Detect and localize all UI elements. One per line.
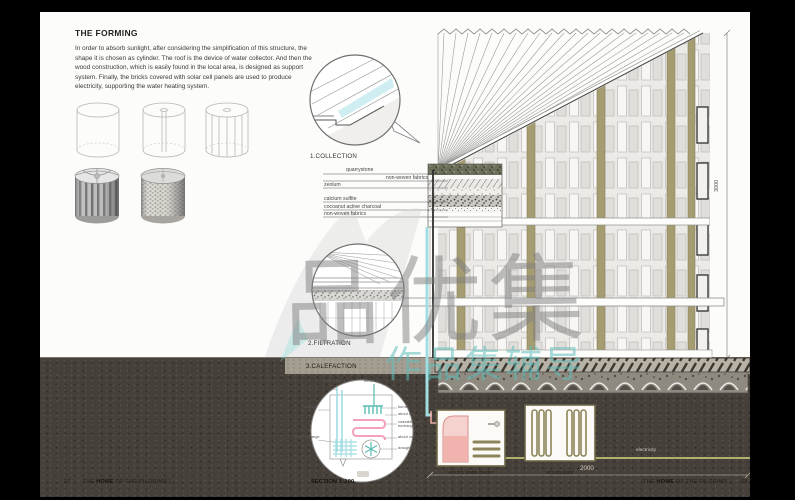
cylinder-plain (77, 103, 119, 157)
label-draught-fan: draught fan (398, 446, 418, 450)
footer-scale: SECTION 1:100 (311, 479, 354, 485)
intro-paragraph: In order to absorb sunlight, after consi… (75, 44, 313, 92)
water-heater-label: electric water heater (434, 470, 508, 476)
footer-left: 07THE HOME OF THE PILGRIMS | (64, 479, 171, 485)
page-number-left: 07 (64, 479, 71, 485)
roof-layer-stack (428, 164, 502, 227)
cylinder-ribs (206, 103, 248, 157)
label-exchanger: coaxable heat exchanger (398, 420, 428, 429)
collection-detail-circle (310, 55, 420, 145)
label-heat-exchange: heat exchange (294, 435, 320, 439)
accumulator (525, 405, 595, 461)
cylinder-solar (75, 169, 119, 224)
dimension-3000-label: 3000 (714, 180, 720, 192)
layer-label-fabrics-bottom: non-woven fabrics (324, 211, 366, 217)
brick-pier (667, 33, 675, 358)
dimension-3000 (724, 30, 730, 361)
label-cold-water: cold water (324, 379, 342, 383)
cylinder-core (143, 103, 185, 157)
label-coil-bottom: about coil (398, 435, 415, 439)
label-burner: burner (398, 405, 409, 409)
layer-label-charcoal: cocoanut active charcoal (324, 204, 381, 210)
presentation-sheet: THE FORMING In order to absorb sunlight,… (40, 12, 750, 497)
layer-label-zeolum: zeolum (324, 182, 341, 188)
step-collection-label: 1.COLLECTION (310, 153, 357, 160)
page-title: THE FORMING (75, 28, 138, 38)
accumulator-label: accumulator (525, 470, 595, 476)
label-coil-top: about coil (398, 412, 415, 416)
layer-label-calcium-sulfite: calcium sulfite (324, 196, 357, 202)
page-number-right: 08 (741, 479, 748, 485)
electric-water-heater (427, 409, 505, 466)
footer-marker (357, 471, 369, 477)
label-electricity-top: electricity (364, 379, 380, 383)
cylinder-brick (141, 169, 185, 224)
cylinder-diagrams (70, 100, 300, 250)
label-storage: storage (304, 405, 317, 409)
layer-label-fabrics-top: non-woven fabrics (348, 175, 428, 181)
footer-right: THE HOME OF THE PILGRIMS |08 (643, 479, 748, 485)
electricity-line-label: electricity (636, 448, 656, 453)
calefaction-detail-circle (311, 380, 413, 482)
layer-label-quarrystone: quarrystone (346, 167, 373, 173)
watermark-text-small: 作品集辅导 (385, 334, 585, 388)
